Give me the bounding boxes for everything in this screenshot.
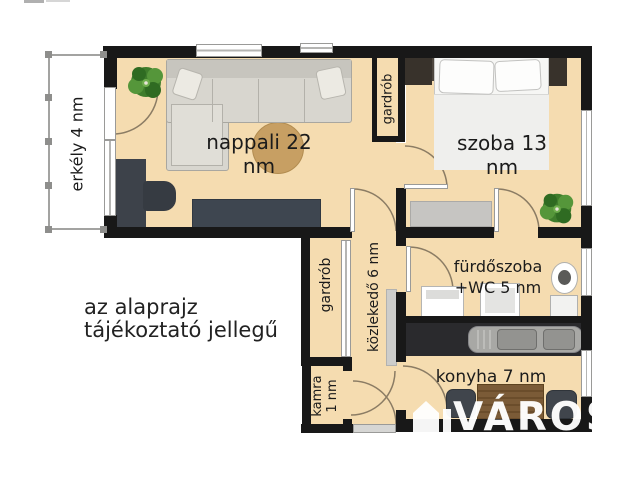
balcony-post bbox=[45, 94, 52, 101]
watermark: VÁROS bbox=[411, 396, 640, 438]
disclaimer-text: az alaprajz tájékoztató jellegű bbox=[84, 296, 304, 342]
window bbox=[300, 43, 333, 53]
sofa-seam bbox=[212, 79, 213, 122]
room-label-gardrob-also: gardrób bbox=[318, 258, 334, 313]
balcony-post bbox=[100, 51, 107, 58]
window bbox=[581, 248, 592, 296]
balcony-post bbox=[100, 226, 107, 233]
window bbox=[581, 350, 592, 397]
kamra-line2: 1 nm bbox=[325, 375, 340, 416]
watermark-text: VÁROS bbox=[453, 398, 617, 438]
wall-bath-kitchen bbox=[396, 316, 592, 323]
wall-mid bbox=[104, 227, 352, 238]
door-leaf bbox=[494, 188, 499, 232]
wall-divider bbox=[396, 188, 406, 227]
wall-right bbox=[581, 46, 592, 110]
sliding-door-gardrob bbox=[341, 240, 351, 357]
wall-right bbox=[581, 206, 592, 248]
sink-drainboard bbox=[473, 330, 495, 349]
disclaimer-line1: az alaprajz bbox=[84, 296, 304, 319]
wall-gardrob-felso bbox=[398, 58, 405, 142]
room-label-kamra: kamra 1 nm bbox=[310, 375, 340, 416]
balcony-post bbox=[45, 51, 52, 58]
plant-icon bbox=[536, 189, 578, 231]
room-label-nappali: nappali 22 nm bbox=[195, 130, 323, 178]
balcony-post bbox=[45, 226, 52, 233]
toilet-hole bbox=[558, 270, 571, 285]
wall-divider bbox=[396, 292, 406, 362]
balcony-post bbox=[45, 138, 52, 145]
desk bbox=[113, 159, 146, 227]
room-label-gardrob-felso: gardrób bbox=[381, 74, 396, 125]
furdoszoba-line1: fürdőszoba bbox=[443, 256, 553, 277]
scan-smudge bbox=[24, 0, 44, 3]
entrance-door bbox=[353, 424, 396, 433]
window bbox=[104, 140, 116, 216]
balcony-post bbox=[45, 182, 52, 189]
sofa-seam bbox=[258, 79, 259, 122]
house-logo-icon bbox=[411, 400, 453, 438]
floorplan-canvas: nappali 22 nm szoba 13 nm erkély 4 nm ga… bbox=[0, 0, 640, 480]
sink-basin bbox=[497, 329, 537, 350]
wall-gardrob-felso bbox=[372, 58, 377, 142]
furdoszoba-line2: +WC 5 nm bbox=[443, 277, 553, 298]
wall-divider bbox=[396, 238, 406, 246]
wall-mid bbox=[396, 227, 494, 238]
wall-kamra bbox=[343, 357, 352, 371]
door-leaf bbox=[406, 246, 411, 292]
room-label-konyha: konyha 7 nm bbox=[431, 367, 551, 387]
wall-gardrob-felso bbox=[372, 136, 405, 142]
bed-pillow bbox=[494, 59, 542, 92]
tv-sideboard bbox=[192, 199, 321, 230]
wall-right bbox=[581, 296, 592, 350]
room-label-furdoszoba: fürdőszoba +WC 5 nm bbox=[443, 256, 553, 298]
sink-basin bbox=[543, 329, 575, 350]
window bbox=[581, 110, 592, 206]
bedroom-dresser bbox=[410, 201, 492, 227]
door-leaf bbox=[350, 188, 355, 232]
balcony-door bbox=[104, 87, 116, 140]
room-label-kozlekedo: közlekedő 6 nm bbox=[366, 242, 382, 352]
disclaimer-line2: tájékoztató jellegű bbox=[84, 319, 304, 342]
scan-smudge bbox=[46, 0, 70, 2]
toilet-tank bbox=[550, 295, 578, 318]
plant-icon bbox=[124, 62, 168, 106]
nightstand bbox=[404, 57, 432, 85]
bed-pillow bbox=[438, 59, 494, 95]
room-label-szoba: szoba 13 nm bbox=[438, 131, 566, 179]
door-leaf bbox=[404, 184, 448, 189]
room-label-erkely: erkély 4 nm bbox=[68, 97, 87, 192]
sofa-seam bbox=[304, 79, 305, 122]
wall-top bbox=[103, 46, 592, 58]
kamra-line1: kamra bbox=[310, 375, 325, 416]
desk-chair bbox=[143, 181, 176, 211]
window bbox=[196, 44, 262, 57]
